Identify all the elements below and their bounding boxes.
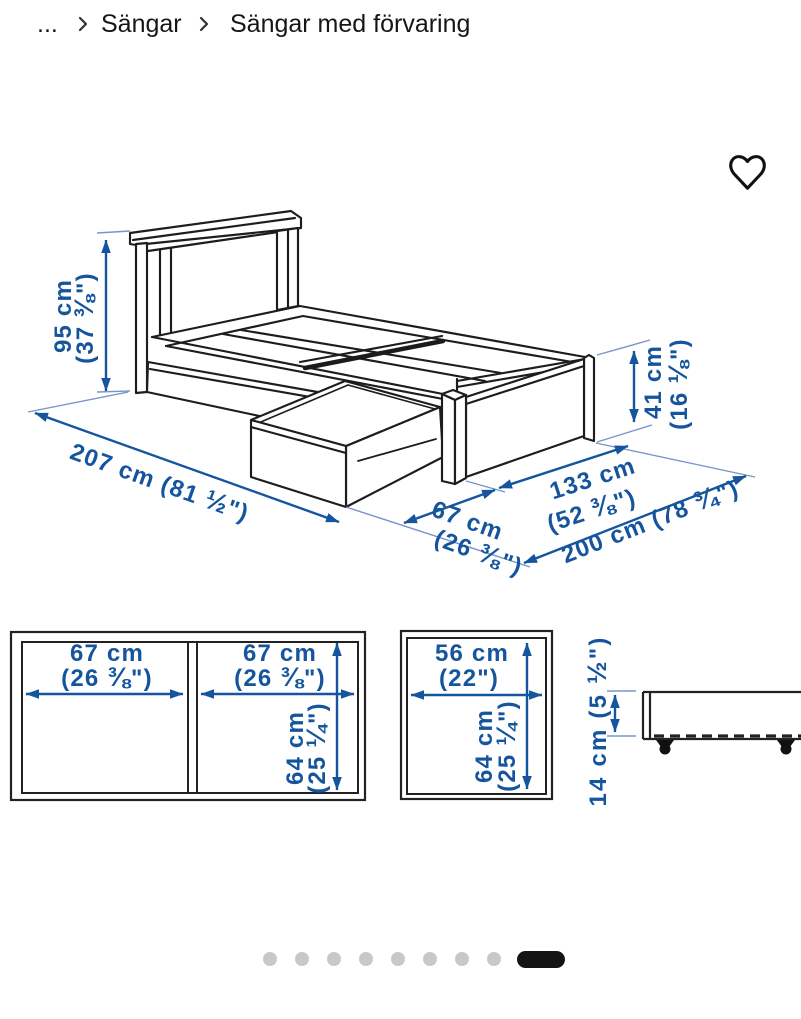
svg-text:56 cm: 56 cm [435,640,509,667]
svg-text:(22"): (22") [439,665,499,692]
svg-text:(37 ⅜"): (37 ⅜") [69,272,99,364]
svg-text:(25 ¼"): (25 ¼") [491,700,521,792]
svg-text:(25 ¼"): (25 ¼") [301,702,331,794]
svg-text:(26 ⅜"): (26 ⅜") [234,662,326,692]
svg-text:(16 ⅛"): (16 ⅛") [663,338,693,430]
svg-text:14 cm (5 ½"): 14 cm (5 ½") [582,635,612,806]
svg-text:(26 ⅜"): (26 ⅜") [61,662,153,692]
